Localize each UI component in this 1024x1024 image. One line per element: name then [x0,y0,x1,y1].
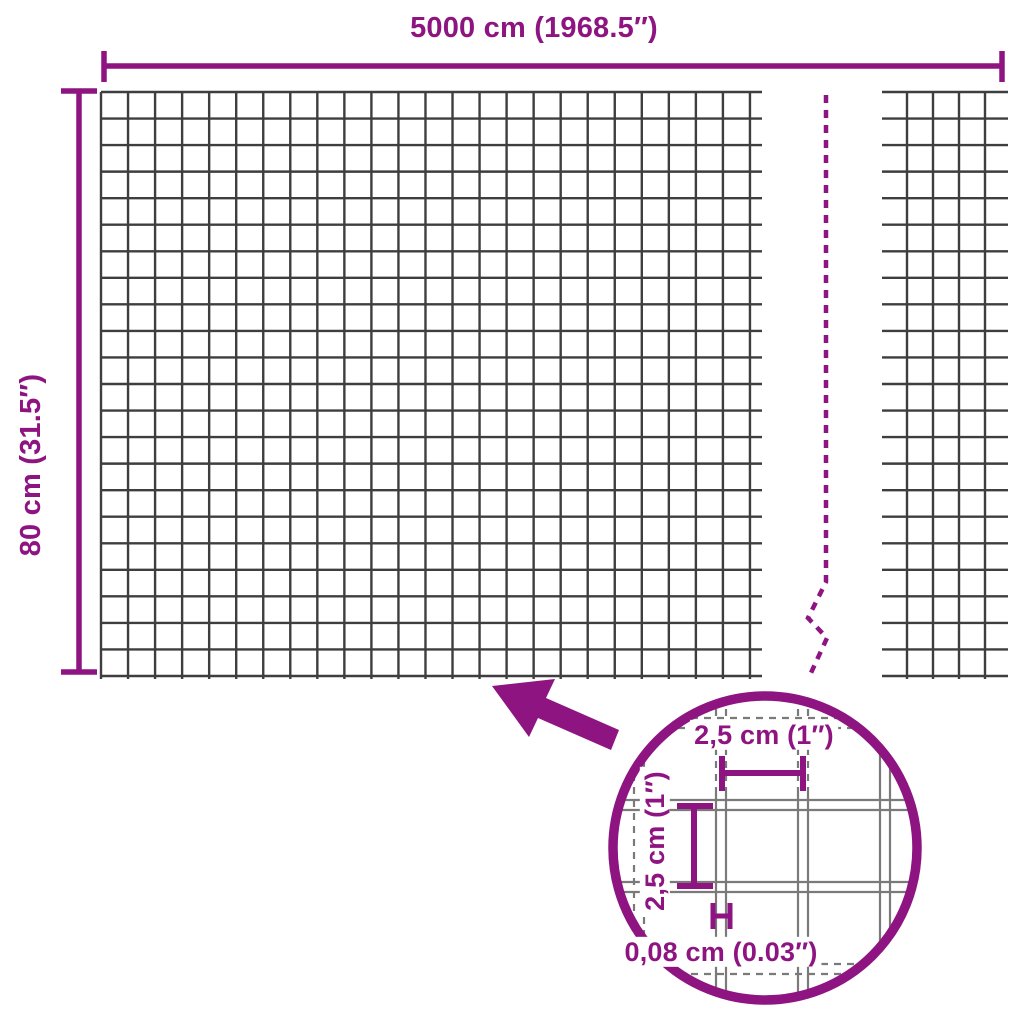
main-mesh-grid [101,92,762,679]
break-line [808,95,827,675]
height-dimension-line [61,91,97,672]
mesh-diagram-canvas [0,0,1024,1024]
magnifier-arrow [492,679,619,750]
wire-thickness-label: 0,08 cm (0.03″) [620,937,821,967]
width-dimension-line [104,51,1002,82]
height-dimension-label: 80 cm (31.5″) [16,374,46,557]
width-dimension-label: 5000 cm (1968.5″) [410,13,658,43]
product-dimension-diagram: 5000 cm (1968.5″) 80 cm (31.5″) 2,5 cm (… [0,0,1024,1024]
detail-mesh-height-label: 2,5 cm (1″) [640,767,670,915]
right-mesh-grid [882,92,1008,679]
detail-dimension-markers [677,756,803,929]
detail-mesh-width-label: 2,5 cm (1″) [690,720,838,750]
